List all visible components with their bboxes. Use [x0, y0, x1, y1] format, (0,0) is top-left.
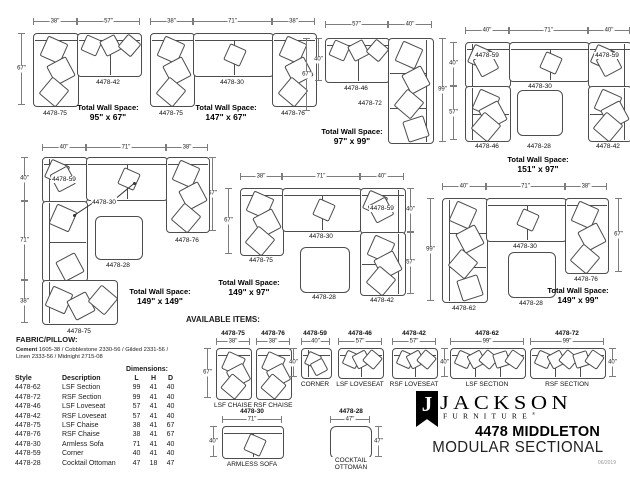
- dimension: 40": [609, 348, 616, 377]
- dimension-label: 57": [448, 110, 459, 117]
- dim-tick: [314, 18, 315, 25]
- dim-tick: [330, 416, 331, 423]
- dimension: 40": [407, 188, 414, 232]
- pillow-icon: [48, 203, 77, 232]
- jackson-logo-mark: J: [416, 391, 438, 427]
- piece-style-label: 4478-75: [158, 110, 184, 117]
- pillow-icon: [366, 39, 390, 63]
- sofa-piece-outline: [33, 33, 79, 107]
- registered-mark: ®: [532, 411, 535, 416]
- furniture-text: FURNITURE: [443, 412, 532, 421]
- dim-tick: [407, 188, 414, 189]
- dimension: 67": [303, 38, 310, 111]
- dimension-label: 71": [543, 27, 554, 34]
- dimension: 71": [193, 18, 272, 25]
- spec-cell: 4478-62: [15, 383, 62, 392]
- spec-cell: 40: [128, 449, 145, 458]
- fabric-list-line1: Cement 1605-38 / Cobblestone 2330-56 / G…: [16, 347, 168, 354]
- dimension-label: 67": [16, 66, 27, 73]
- item-name-label: RSF LOVESEAT: [389, 381, 440, 388]
- dim-tick: [338, 338, 339, 345]
- dimension: 71": [486, 183, 565, 190]
- dimensions-header: Dimensions:: [126, 366, 168, 373]
- spec-row: 4478-28Cocktail Ottoman471847: [15, 459, 179, 468]
- dimension-label: 40": [405, 21, 416, 28]
- dimension: 57": [450, 86, 457, 140]
- dim-tick: [442, 183, 443, 190]
- sofa-piece-outline: [77, 33, 142, 77]
- spec-cell: 41: [145, 449, 162, 458]
- dim-tick: [210, 456, 217, 457]
- dim-tick: [225, 188, 232, 189]
- dimension-label: 47": [373, 438, 384, 445]
- spec-cell: 40: [162, 402, 179, 411]
- spec-cell: 4478-72: [15, 393, 62, 402]
- dim-tick: [603, 338, 604, 345]
- dimension: 40": [450, 42, 457, 86]
- dim-tick: [439, 141, 446, 142]
- dimension-label: 57": [355, 338, 366, 345]
- dim-tick: [209, 157, 216, 158]
- spec-cell: 40: [162, 393, 179, 402]
- spec-row: 4478-59Corner404140: [15, 449, 179, 458]
- dim-tick: [18, 33, 25, 34]
- dimension-label: 67": [613, 232, 624, 239]
- spec-column-header: Style: [15, 374, 62, 383]
- dim-tick: [392, 338, 393, 345]
- callout-arrowhead: [133, 182, 136, 185]
- item-style-label: 4478-28: [338, 408, 364, 415]
- dimension-label: 99": [437, 87, 448, 94]
- corner-piece-outline: [588, 42, 630, 88]
- dimension: 47": [375, 426, 382, 457]
- piece-style-label: 4478-59: [51, 176, 77, 183]
- dim-tick: [21, 157, 28, 158]
- dim-tick: [388, 21, 389, 28]
- dim-tick: [375, 456, 382, 457]
- spec-cell: 57: [128, 402, 145, 411]
- total-wall-space: Total Wall Space:149" x 149": [129, 287, 190, 306]
- dimension: 67": [204, 348, 211, 398]
- dim-tick: [207, 144, 208, 151]
- pillow-icon: [243, 433, 267, 457]
- dimension: 40": [210, 426, 217, 457]
- dim-tick: [375, 426, 382, 427]
- item-style-label: 4478-62: [474, 330, 500, 337]
- sofa-piece-outline: [240, 188, 284, 256]
- total-wall-space: Total Wall Space:147" x 67": [195, 103, 256, 122]
- dimension-label: 40": [607, 359, 618, 366]
- dimension-label: 71": [227, 18, 238, 25]
- sofa-piece-outline: [465, 86, 511, 142]
- dimension-label: 67": [202, 370, 213, 377]
- dim-tick: [21, 322, 28, 323]
- sofa-piece-outline: [588, 86, 630, 142]
- item-style-label: 4478-76: [260, 330, 286, 337]
- spec-cell: 4478-42: [15, 412, 62, 421]
- dim-tick: [450, 338, 451, 345]
- piece-style-label: 4478-59: [594, 52, 620, 59]
- pillow-icon: [539, 51, 563, 75]
- total-wall-space-value: 95" x 67": [77, 112, 138, 122]
- piece-style-label: 4478-42: [95, 79, 121, 86]
- pillow-icon: [223, 43, 247, 67]
- dim-tick: [33, 18, 34, 25]
- pillow-icon: [55, 252, 85, 282]
- dimension: 38": [166, 144, 208, 151]
- item-name-label: LSF LOVESEAT: [335, 381, 385, 388]
- dim-tick: [42, 144, 43, 151]
- dim-tick: [240, 173, 241, 180]
- dimension-label: 40": [310, 338, 321, 345]
- dimension-label: 40": [288, 359, 299, 366]
- spec-cell: RSF Chaise: [62, 430, 128, 439]
- sofa-piece-outline: [360, 232, 406, 296]
- total-wall-space-value: 97" x 99": [321, 136, 382, 146]
- dim-tick: [427, 198, 434, 199]
- dimension: 38": [240, 173, 282, 180]
- dimension-label: 40": [459, 183, 470, 190]
- pillow-icon: [171, 203, 202, 234]
- sofa-piece-outline: [282, 188, 362, 232]
- spec-cell: 41: [145, 383, 162, 392]
- dim-tick: [530, 338, 531, 345]
- fabric-pillow-heading: FABRIC/PILLOW:: [16, 335, 168, 344]
- dim-tick: [360, 173, 361, 180]
- sofa-piece-outline: [222, 426, 284, 459]
- dimension-label: 57": [103, 18, 114, 25]
- spec-column-header: D: [162, 374, 179, 383]
- spec-cell: 4478-75: [15, 421, 62, 430]
- piece-style-label: 4478-75: [66, 328, 92, 335]
- dim-tick: [609, 348, 616, 349]
- dimension: 40": [42, 144, 86, 151]
- sofa-piece-outline: [509, 42, 590, 82]
- piece-style-label: 4478-42: [595, 143, 621, 150]
- spec-cell: 67: [162, 421, 179, 430]
- collection-title: 4478 MIDDLETON: [475, 424, 600, 440]
- dimension-label: 99": [425, 246, 436, 253]
- dim-tick: [329, 338, 330, 345]
- dimension-label: 71": [121, 144, 132, 151]
- dimension-label: 40": [377, 173, 388, 180]
- spec-cell: 71: [128, 440, 145, 449]
- dimension: 38": [216, 338, 250, 345]
- total-wall-space-label: Total Wall Space:: [321, 127, 382, 136]
- fabric-list-line2: Linen 2333-56 / Midnight 2715-08: [16, 354, 168, 361]
- brand-furniture-wordmark: FURNITURE®: [443, 411, 535, 421]
- dim-tick: [431, 21, 432, 28]
- piece-style-label: 4478-76: [174, 237, 200, 244]
- dimension: 71": [21, 201, 28, 280]
- spec-cell: 41: [145, 402, 162, 411]
- dim-tick: [450, 86, 457, 87]
- callout-arrowhead: [73, 214, 76, 217]
- sofa-piece-outline: [338, 348, 384, 379]
- piece-style-label: 4478-76: [280, 110, 306, 117]
- spec-row: 4478-76RSF Chaise384167: [15, 430, 179, 439]
- dimension: 57": [407, 232, 414, 294]
- dimension-label: 38": [166, 18, 177, 25]
- total-wall-space: Total Wall Space:95" x 67": [77, 103, 138, 122]
- total-wall-space: Total Wall Space:97" x 99": [321, 127, 382, 146]
- dimension-label: 57": [409, 338, 420, 345]
- piece-style-label: 4478-72: [357, 100, 383, 107]
- sofa-piece-outline: [86, 157, 168, 201]
- item-style-label: 4478-75: [220, 330, 246, 337]
- item-style-label: 4478-72: [554, 330, 580, 337]
- spec-cell: 40: [162, 449, 179, 458]
- sofa-piece-outline: [450, 348, 526, 379]
- dimension-label: 38": [228, 338, 239, 345]
- dim-tick: [407, 293, 414, 294]
- sofa-piece-outline: [388, 38, 434, 144]
- spec-cell: 41: [145, 393, 162, 402]
- dimension-label: 38": [182, 144, 193, 151]
- dim-tick: [441, 376, 448, 377]
- dim-tick: [290, 348, 297, 349]
- spec-cell: RSF Loveseat: [62, 412, 128, 421]
- corner-piece-outline: [465, 42, 511, 88]
- dimension: 99": [450, 338, 524, 345]
- dim-tick: [209, 230, 216, 231]
- dim-tick: [21, 201, 28, 202]
- ottoman-outline: [95, 216, 143, 260]
- piece-style-label: 4478-46: [343, 85, 369, 92]
- dim-tick: [439, 38, 446, 39]
- piece-style-label: 4478-30: [512, 243, 538, 250]
- sofa-piece-outline: [325, 38, 390, 83]
- dimension-label: 40": [604, 27, 615, 34]
- piece-style-label: 4478-59: [474, 52, 500, 59]
- dimension-label: 40": [208, 438, 219, 445]
- piece-style-label: 4478-28: [311, 294, 337, 301]
- spec-table-header: StyleDescriptionLHD: [15, 374, 179, 383]
- dimension-label: 40": [59, 144, 70, 151]
- item-name-label: COCKTAIL OTTOMAN: [326, 457, 376, 471]
- piece-style-label: 4478-30: [219, 79, 245, 86]
- spec-row: 4478-42RSF Loveseat574140: [15, 412, 179, 421]
- spec-row: 4478-72RSF Section994140: [15, 393, 179, 402]
- spec-cell: 57: [128, 412, 145, 421]
- dimension-label: 40": [448, 61, 459, 68]
- dim-tick: [290, 376, 297, 377]
- dim-tick: [77, 18, 78, 25]
- dimension-label: 38": [288, 18, 299, 25]
- dimension-label: 40": [439, 359, 450, 366]
- total-wall-space-label: Total Wall Space:: [547, 286, 608, 295]
- spec-cell: 47: [162, 459, 179, 468]
- item-style-label: 4478-59: [302, 330, 328, 337]
- dim-tick: [407, 232, 414, 233]
- dimension-label: 38": [581, 183, 592, 190]
- piece-style-label: 4478-59: [369, 205, 395, 212]
- dimension: 67": [18, 33, 25, 105]
- total-wall-space-value: 149" x 149": [129, 296, 190, 306]
- piece-style-label: 4478-76: [573, 276, 599, 283]
- spec-cell: 41: [145, 430, 162, 439]
- dim-tick: [565, 183, 566, 190]
- sofa-piece-outline: [166, 157, 210, 233]
- dimension: 38": [272, 18, 315, 25]
- dimension: 71": [282, 173, 360, 180]
- corner-piece-outline: [301, 348, 332, 379]
- dimension-label: 38": [19, 298, 30, 305]
- dim-tick: [86, 144, 87, 151]
- sofa-piece-outline: [272, 33, 317, 107]
- piece-style-label: 4478-75: [42, 110, 68, 117]
- spec-column-header: H: [145, 374, 162, 383]
- dimension: 47": [330, 416, 370, 423]
- dimension-label: 99": [482, 338, 493, 345]
- spec-column-header: Description: [62, 374, 128, 383]
- logo-initial: J: [422, 392, 433, 416]
- spec-cell: 99: [128, 383, 145, 392]
- piece-style-label: 4478-28: [105, 262, 131, 269]
- dimension-label: 71": [247, 416, 258, 423]
- dim-tick: [315, 80, 322, 81]
- ottoman-outline: [330, 426, 372, 459]
- spec-column-header: L: [128, 374, 145, 383]
- pillow-icon: [155, 77, 186, 108]
- dimension: 57": [325, 21, 388, 28]
- dimension: 38": [21, 280, 28, 323]
- spec-row: 4478-75LSF Chaise384167: [15, 421, 179, 430]
- sofa-piece-outline: [216, 348, 252, 400]
- total-wall-space: Total Wall Space:149" x 99": [547, 286, 608, 305]
- spec-cell: 38: [128, 421, 145, 430]
- product-type-title: MODULAR SECTIONAL: [432, 439, 603, 457]
- dim-tick: [615, 271, 622, 272]
- dim-tick: [21, 280, 28, 281]
- piece-style-label: 4478-28: [518, 300, 544, 307]
- spec-cell: Corner: [62, 449, 128, 458]
- spec-sheet-page: FABRIC/PILLOW: Cement 1605-38 / Cobblest…: [0, 0, 630, 486]
- spec-cell: 18: [145, 459, 162, 468]
- dim-tick: [325, 21, 326, 28]
- piece-style-label: 4478-42: [369, 297, 395, 304]
- dim-tick: [18, 104, 25, 105]
- sofa-piece-outline: [530, 348, 606, 379]
- dimension: 40": [465, 27, 509, 34]
- dim-tick: [303, 38, 310, 39]
- sofa-piece-outline: [150, 33, 195, 107]
- dimension: 38": [150, 18, 193, 25]
- spec-cell: 38: [128, 430, 145, 439]
- dim-tick: [210, 426, 217, 427]
- spec-cell: 4478-46: [15, 402, 62, 411]
- piece-callout-label: 4478-30: [91, 199, 117, 206]
- seat-back-line: [398, 190, 399, 232]
- spec-cell: 40: [162, 412, 179, 421]
- dimension: 71": [86, 144, 166, 151]
- dim-tick: [441, 348, 448, 349]
- pillow-icon: [516, 208, 540, 232]
- piece-style-label: 4478-30: [308, 233, 334, 240]
- dimension-label: 99": [562, 338, 573, 345]
- piece-style-label: 4478-75: [248, 257, 274, 264]
- sofa-piece-outline: [442, 198, 488, 303]
- dim-tick: [204, 348, 211, 349]
- dim-tick: [281, 416, 282, 423]
- dim-tick: [450, 139, 457, 140]
- total-wall-space-label: Total Wall Space:: [218, 278, 279, 287]
- dimension: 71": [509, 27, 588, 34]
- spec-row: 4478-46LSF Loveseat574140: [15, 402, 179, 411]
- dim-tick: [523, 338, 524, 345]
- dim-tick: [450, 42, 457, 43]
- sofa-piece-outline: [565, 198, 609, 274]
- sofa-piece-outline: [42, 201, 88, 282]
- spec-cell: Armless Sofa: [62, 440, 128, 449]
- dimension-label: 38": [50, 18, 61, 25]
- pillow-icon: [312, 198, 336, 222]
- dimension: 99": [427, 198, 434, 301]
- dimension-label: 71": [19, 237, 30, 244]
- spec-cell: Cocktail Ottoman: [62, 459, 128, 468]
- date-code: 06/2019: [598, 460, 616, 466]
- piece-style-label: 4478-28: [526, 143, 552, 150]
- dim-tick: [204, 397, 211, 398]
- item-name-label: LSF SECTION: [465, 381, 510, 388]
- total-wall-space: Total Wall Space:149" x 97": [218, 278, 279, 297]
- dim-tick: [403, 173, 404, 180]
- total-wall-space-label: Total Wall Space:: [507, 155, 568, 164]
- dimension: 57": [338, 338, 382, 345]
- dimension-label: 71": [520, 183, 531, 190]
- sofa-piece-outline: [193, 33, 274, 77]
- spec-cell: LSF Chaise: [62, 421, 128, 430]
- dimension: 67": [209, 157, 216, 231]
- spec-cell: 47: [128, 459, 145, 468]
- dimension: 99": [530, 338, 604, 345]
- dimension-label: 57": [405, 260, 416, 267]
- dim-tick: [166, 144, 167, 151]
- sofa-piece-outline: [486, 198, 567, 242]
- dim-tick: [301, 338, 302, 345]
- dim-tick: [509, 27, 510, 34]
- dimension: 57": [77, 18, 140, 25]
- item-style-label: 4478-30: [239, 408, 265, 415]
- spec-cell: 4478-76: [15, 430, 62, 439]
- piece-style-label: 4478-30: [527, 83, 553, 90]
- dim-tick: [369, 416, 370, 423]
- spec-cell: 99: [128, 393, 145, 402]
- available-items-heading: AVAILABLE ITEMS:: [186, 315, 260, 324]
- dim-tick: [588, 27, 589, 34]
- item-name-label: CORNER: [300, 381, 330, 388]
- dim-tick: [381, 338, 382, 345]
- total-wall-space-value: 149" x 97": [218, 287, 279, 297]
- dimension: 38": [33, 18, 77, 25]
- piece-style-label: 4478-46: [474, 143, 500, 150]
- dim-tick: [303, 110, 310, 111]
- spec-cell: 4478-28: [15, 459, 62, 468]
- spec-cell: 4478-59: [15, 449, 62, 458]
- dimension-label: 38": [268, 338, 279, 345]
- dim-tick: [256, 338, 257, 345]
- dim-tick: [282, 173, 283, 180]
- dim-tick: [465, 27, 466, 34]
- spec-cell: LSF Section: [62, 383, 128, 392]
- dimension: 40": [441, 348, 448, 377]
- dimension-label: 71": [316, 173, 327, 180]
- spec-cell: 41: [145, 412, 162, 421]
- dimension: 67": [615, 198, 622, 272]
- fabric-name-lead: Cement: [16, 347, 37, 353]
- total-wall-space-label: Total Wall Space:: [77, 103, 138, 112]
- dimension: 38": [565, 183, 607, 190]
